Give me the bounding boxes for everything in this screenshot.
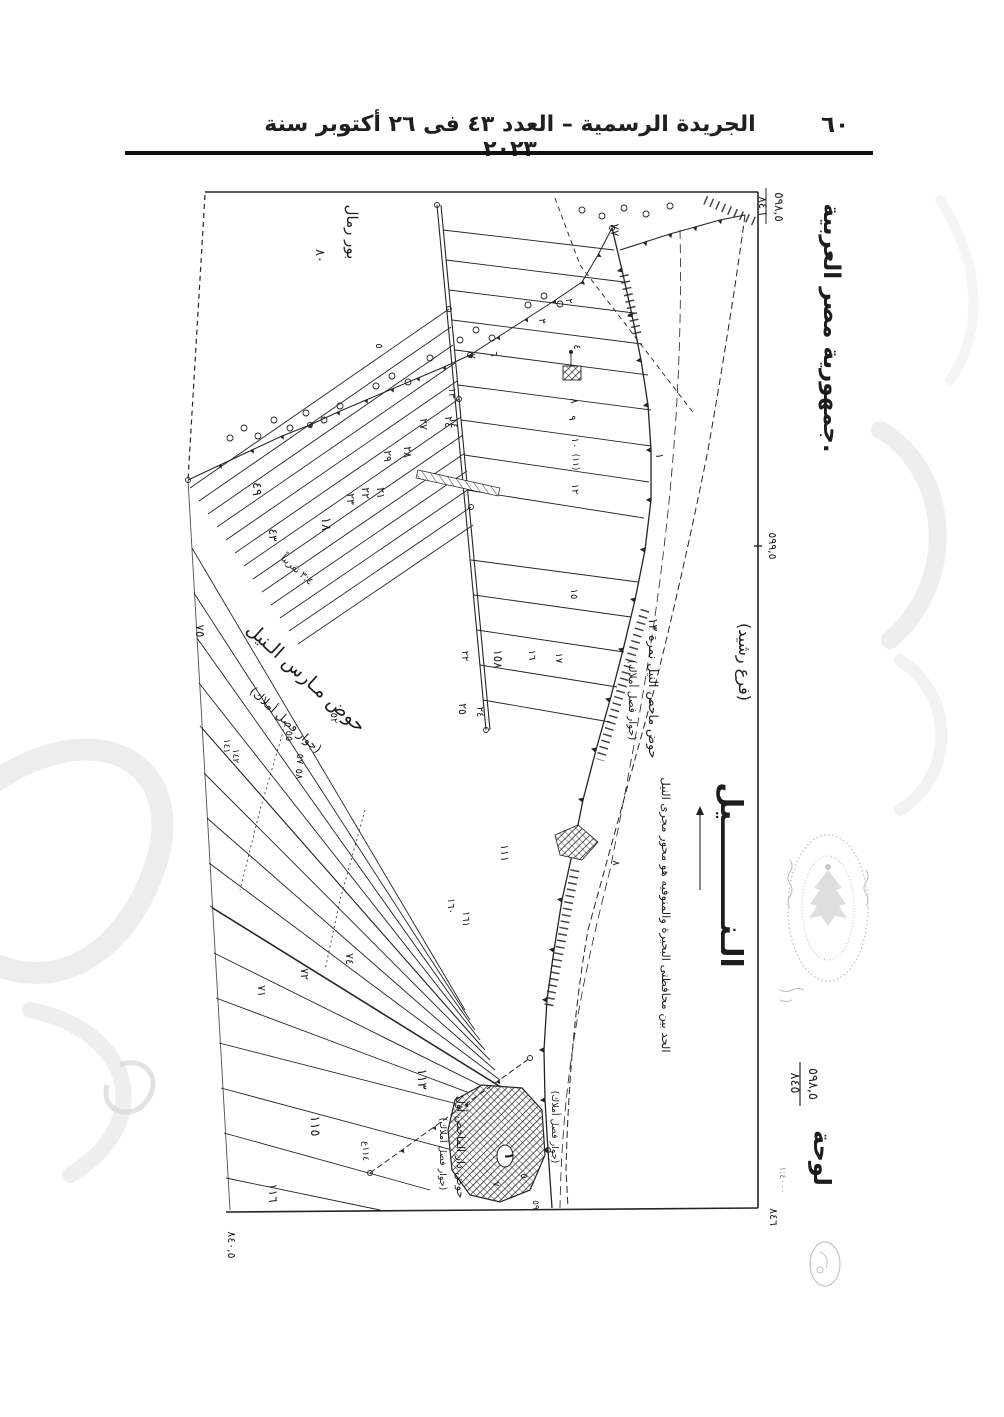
easement-note: (جوار فصل أملاك) [626,660,640,740]
village-number: ١ [502,1152,516,1159]
parcel-number: ١٢ [569,484,580,495]
country-label: جمهورية مصر العربية. [818,203,844,452]
ratio-note: ٣:٤ تقريباً [278,550,317,587]
easement-note: (جوار فصل أملاك) [437,1118,450,1191]
sheet-ref-bottom-right-den: ٥٩٨,٥ [805,1068,820,1100]
coord-bottom-left: ٨٤٠,٥ [225,1231,238,1258]
village-basin-label: حوض دار الماحص أول [454,1096,468,1198]
right-bank-top [620,215,745,250]
parcel-number: ٥٢ [328,713,339,724]
survey-edge-left [188,480,230,1210]
watermark-swirl [940,200,973,380]
eagle-icon [809,870,847,926]
parcel-number: (١١) [570,454,580,471]
parcel-number: ١٨ [318,517,333,531]
parcel-number: ٥٥ [283,731,294,742]
survey-edge-dashed [188,195,205,480]
parcel-number: ٢٢ [459,651,470,662]
parcel-number: ٨ [568,398,579,404]
hatched-channel [416,470,500,496]
parcel-number: ١١٦ [266,1183,280,1202]
parcel-number: ٢٤ [474,707,485,718]
parcel-number: ١٦٠ [445,898,456,914]
parcel-number: ١٦١ [460,911,471,927]
parcel-number: ١٣ [446,388,457,399]
parcel-number: ٨ [610,860,621,866]
parcel-number: ١٤١ [221,739,231,754]
parcel-number: ٨٠ [312,249,327,263]
registry-oval-mark [810,1242,840,1286]
parcel-number: ٧٤ [343,953,356,965]
parcel-number: ٥ [373,343,384,348]
parcel-number: ١١٥ [307,1116,322,1137]
nile-name: الـنــــــــــيل [713,782,748,968]
basin-mares-label: حوض مـارس الـنيل [242,618,370,737]
governorate-boundary-note: الحد بين محافظتى البحيرة والمنوفيه هو مح… [658,777,673,1052]
parcel-number: ٦ [488,351,499,356]
parcel-number: ١١١ [498,844,511,862]
parcel-number: ١ [653,453,666,459]
parcel-number: ٤٣ [266,529,280,542]
nile-branch: (فرع رشيد) [734,623,754,701]
parcel-number: ٧٢ [298,968,311,980]
parcel-number: ٢٣ [344,493,357,505]
basin-mahas-label: حوض ماحص النيل نمرة ١٣ [645,618,661,759]
watermark-swirl [900,660,941,810]
sheet-ref-bottom-right-num: ٨٤٥ [787,1073,802,1094]
parcel-number: ٤ [571,344,582,349]
survey-points [186,203,615,1176]
parcel-number: ٣ [536,318,547,324]
parcel-number: ٢١ [374,487,387,499]
parcel-number: ١٥٨ [491,649,505,669]
parcel-number: ١٦ [526,650,537,661]
parcel-number: ٧٥ [193,625,207,638]
parcel-number: ٢٥ [456,703,469,715]
parcel-number: ٧١ [255,985,268,997]
parcel-number: ٢٧ [417,418,430,430]
parcel-number: ٤٩ [249,482,264,496]
page-number: ٦٠ [805,112,865,138]
parcel-number: ٢٩ [381,450,394,462]
easement-note: (جوار فصل أملاك) [549,1091,562,1164]
parcel-number: ١١٤ع [360,1141,370,1161]
parcel-number: ٧٧ [608,224,622,237]
parcel-number: ٥٧ [294,754,305,765]
official-eagle-seal [780,835,868,1002]
coord-right-mid: ٥٩٩,٥ [766,532,779,559]
parcel-number: ٧ [466,353,477,359]
crosshatch-spur [555,825,598,860]
parcel-number: ٥ [518,1173,529,1178]
parcel-number: ٧ [490,1181,501,1187]
sheet-ref-top-right-num: ٨٤٦ [756,196,770,215]
sheet-word: لوحة [808,1130,836,1186]
parcel-number: ٩ [566,415,577,420]
sheet-ref-top-right-den: ٥٩٨,٥ [772,192,786,222]
watermark-swirl [30,1010,124,1175]
gazette-header: الجريدة الرسمية – العدد ٤٣ فى ٢٦ أكتوبر … [0,106,1004,152]
flow-arrow [696,806,704,890]
parcel-number: ٢٢ [359,487,372,499]
parcel-number: ١١٣ [414,1069,429,1090]
parcel-number: ٥٩ [530,1200,540,1210]
cadastral-map: جمهورية مصر العربية.٨٤٦٥٩٨,٥٥٩٩,٥٨٤٥٥٩٨,… [130,170,900,1290]
parcel-number: ٢٨ [401,446,414,458]
scale-note: ١:٤٠٠٠ [777,1166,787,1193]
parcel-number: ١٥ [568,589,579,600]
gazette-page: { "header": { "title": "الجريدة الرسمية … [0,0,1004,1417]
parcel-number: ١٤٢ [230,749,240,764]
parcel-number: ٥٨ [293,769,304,780]
parcel-number: ١٧ [553,653,564,664]
corner-ref-bottom: ٨٤٦ [767,1208,780,1226]
parcel-number: ٢٤ [442,416,455,428]
header-rule [125,151,873,155]
parcel-number: ١٠ [569,438,580,449]
region-bour-remal: بور رمال [343,205,361,260]
parcel-number: ٢ [563,298,574,303]
